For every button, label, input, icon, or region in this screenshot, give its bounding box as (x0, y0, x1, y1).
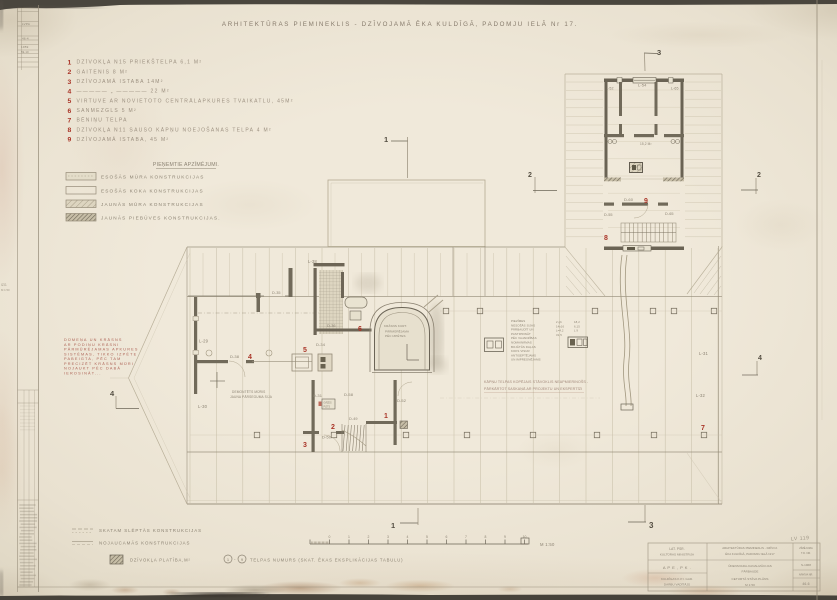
svg-text:KĀPŅU TELPAS KOPĒJAIS STĀVOKLI: KĀPŅU TELPAS KOPĒJAIS STĀVOKLIS NEAPMIER… (484, 379, 589, 384)
svg-text:————— „ ————— 22 M²: ————— „ ————— 22 M² (77, 89, 170, 95)
svg-text:46-6: 46-6 (802, 582, 809, 586)
svg-text:-: - (234, 557, 236, 562)
svg-text:DZĪVOJAMĀ ISTABA, 45 M²: DZĪVOJAMĀ ISTABA, 45 M² (77, 136, 170, 143)
svg-text:M 1:50: M 1:50 (1, 288, 10, 292)
svg-text:4: 4 (758, 355, 762, 362)
svg-text:PRECIZĒT KRĀSNS MŪRI: PRECIZĒT KRĀSNS MŪRI (64, 362, 134, 366)
svg-text:PĀRMŪRĒJAMAS APKURES: PĀRMŪRĒJAMAS APKURES (64, 348, 139, 352)
svg-text:31,5: 31,5 (556, 333, 562, 337)
svg-text:JAUNĀS PIEBŪVES KONSTRUKCIJAS.: JAUNĀS PIEBŪVES KONSTRUKCIJAS. (101, 215, 221, 221)
svg-text:1: 1 (227, 557, 230, 562)
svg-text:8: 8 (604, 235, 608, 242)
svg-text:D-60: D-60 (624, 197, 634, 202)
svg-text:UN IMPREGNĒJAMS: UN IMPREGNĒJAMS (511, 358, 541, 362)
svg-text:10: 10 (523, 535, 527, 539)
svg-text:GAITENIS 8 M²: GAITENIS 8 M² (77, 69, 129, 75)
svg-text:2: 2 (68, 69, 72, 76)
svg-text:L-54: L-54 (638, 83, 647, 88)
svg-text:D-34: D-34 (316, 342, 326, 347)
svg-text:DZĪVOJAMĀ ISTABA 14M²: DZĪVOJAMĀ ISTABA 14M² (77, 78, 164, 85)
svg-text:PĒC IZPĒTES: PĒC IZPĒTES (385, 334, 406, 338)
svg-text:D-52: D-52 (397, 398, 407, 403)
svg-text:TELPAS NUMURS (SKAT. ĒKAS EKSP: TELPAS NUMURS (SKAT. ĒKAS EKSPLIKĀCIJAS … (250, 558, 403, 563)
svg-text:GĀZES: GĀZES (324, 402, 333, 405)
svg-text:PĀRBAUDE: PĀRBAUDE (742, 570, 759, 574)
svg-text:0: 0 (329, 535, 331, 539)
svg-text:D-65: D-65 (665, 212, 674, 216)
svg-text:ĒKA KULDĪGĀ, PADOMJU IELĀ Nr17: ĒKA KULDĪGĀ, PADOMJU IELĀ Nr17 (725, 552, 775, 556)
svg-text:L 9: L 9 (574, 329, 578, 333)
svg-text:AR PODIŅU KRĀSNI: AR PODIŅU KRĀSNI (64, 343, 120, 347)
svg-text:5: 5 (303, 347, 307, 354)
svg-text:ŪDENSVADA-KANALIZĀCIJAS: ŪDENSVADA-KANALIZĀCIJAS (728, 564, 772, 568)
svg-text:PLĪTS: PLĪTS (324, 406, 331, 409)
svg-text:D-36: D-36 (327, 324, 336, 328)
svg-text:D-38: D-38 (230, 354, 240, 359)
svg-text:DŪMEŅA UN KRĀSNS: DŪMEŅA UN KRĀSNS (64, 338, 123, 342)
svg-text:D-31: D-31 (313, 393, 323, 398)
svg-text:PĀRKĀRTOT SASKAŅĀ AR PROJEKTU: PĀRKĀRTOT SASKAŅĀ AR PROJEKTU UN EKSPERT… (484, 387, 582, 391)
svg-text:9: 9 (504, 535, 506, 539)
svg-text:4: 4 (248, 354, 252, 361)
svg-text:2: 2 (528, 172, 532, 179)
svg-text:3: 3 (387, 535, 389, 539)
svg-text:6: 6 (358, 326, 362, 333)
svg-text:L-29: L-29 (199, 339, 209, 344)
svg-text:BĒNIŅU TELPA: BĒNIŅU TELPA (77, 117, 128, 124)
svg-text:LV 119: LV 119 (791, 535, 810, 542)
svg-text:S-1968: S-1968 (801, 563, 811, 567)
svg-text:LAT. PSR.: LAT. PSR. (669, 547, 684, 551)
svg-text:ARHITEKTŪRAS PIEMINEKLIS - DZĪ: ARHITEKTŪRAS PIEMINEKLIS - DZĪVOJAMĀ ĒKA… (222, 21, 578, 28)
svg-text:2: 2 (757, 172, 761, 179)
svg-text:JAUNA PĀRSEGUMA SIJA: JAUNA PĀRSEGUMA SIJA (230, 395, 273, 399)
svg-text:DARBU VADĪTĀJS: DARBU VADĪTĀJS (664, 583, 690, 587)
svg-text:PĀRMŪRĒJAMA: PĀRMŪRĒJAMA (385, 330, 409, 334)
svg-text:ARHITEKTŪRAS PIEMINEKLIS - DZĪ: ARHITEKTŪRAS PIEMINEKLIS - DZĪVOJ. (722, 546, 778, 550)
svg-text:D-49: D-49 (349, 417, 358, 421)
svg-text:5: 5 (426, 535, 428, 539)
svg-text:ZĪMĒJUMA: ZĪMĒJUMA (799, 546, 813, 550)
svg-text:3: 3 (303, 442, 307, 449)
svg-text:L-32: L-32 (696, 393, 706, 398)
svg-text:ESOŠĀS MŪRA KONSTRUKCIJAS: ESOŠĀS MŪRA KONSTRUKCIJAS (101, 174, 205, 180)
svg-text:T.D. NR.: T.D. NR. (801, 551, 811, 555)
svg-text:4: 4 (407, 535, 409, 539)
svg-text:L-38: L-38 (308, 259, 317, 264)
svg-text:7: 7 (701, 425, 705, 432)
svg-text:KULDĪGAS K.P.I. GAD.: KULDĪGAS K.P.I. GAD. (661, 577, 693, 581)
svg-text:A P E , P K .: A P E , P K . (663, 565, 691, 570)
svg-text:1: 1 (384, 135, 388, 144)
svg-text:LVPA: LVPA (22, 22, 30, 26)
svg-text:6: 6 (446, 535, 448, 539)
svg-text:3: 3 (649, 521, 654, 530)
svg-text:ESOŠĀS KOKA KONSTRUKCIJAS: ESOŠĀS KOKA KONSTRUKCIJAS (101, 188, 204, 194)
svg-text:JAUNĀS MŪRA KONSTRUKCIJAS: JAUNĀS MŪRA KONSTRUKCIJAS (101, 201, 204, 207)
svg-text:5: 5 (68, 98, 72, 105)
svg-text:L-65: L-65 (671, 87, 679, 91)
svg-text:2: 2 (368, 535, 370, 539)
svg-text:D-55: D-55 (604, 213, 613, 217)
svg-text:PABEIGTA, PĒC TAM: PABEIGTA, PĒC TAM (64, 357, 121, 361)
svg-text:7: 7 (465, 535, 467, 539)
svg-text:ARHĪVA NR.: ARHĪVA NR. (799, 574, 813, 577)
svg-text:D-58: D-58 (344, 392, 354, 397)
svg-text:7: 7 (68, 117, 72, 124)
svg-text:NESOŠĀS SIJAS: NESOŠĀS SIJAS (511, 322, 535, 327)
svg-text:D-35: D-35 (272, 291, 281, 295)
svg-text:4: 4 (110, 389, 115, 398)
svg-text:SISTĒMAS, TIKKO IZPĒTE: SISTĒMAS, TIKKO IZPĒTE (64, 352, 137, 356)
svg-text:DZĪVOKĻA PLATĪBA,M²: DZĪVOKĻA PLATĪBA,M² (130, 558, 191, 563)
svg-text:46-4: 46-4 (22, 36, 29, 40)
svg-text:8: 8 (485, 535, 487, 539)
svg-text:6: 6 (68, 108, 72, 115)
svg-text:SKATAM SLĒPTĀS KONSTRUKCIJAS: SKATAM SLĒPTĀS KONSTRUKCIJAS (99, 528, 202, 533)
svg-text:IEROSINĀT...: IEROSINĀT... (64, 371, 102, 375)
svg-text:NOJAUCAMĀS KONSTRUKCIJAS: NOJAUCAMĀS KONSTRUKCIJAS (99, 541, 190, 546)
svg-text:KRĀSNS KURT.: KRĀSNS KURT. (384, 324, 407, 328)
svg-text:DZĪVOKĻA N11 SAUSO KĀPŅU NOEJO: DZĪVOKĻA N11 SAUSO KĀPŅU NOEJOŠANAS TELP… (77, 126, 272, 133)
svg-text:IZG.: IZG. (1, 283, 7, 287)
svg-text:1: 1 (68, 60, 72, 67)
svg-text:15,2 M²: 15,2 M² (640, 142, 652, 146)
svg-text:SANMEZGLS 5 M²: SANMEZGLS 5 M² (77, 108, 137, 114)
svg-text:DZĪVOKĻA N15 PRIEKŠTELPA 6,1: DZĪVOKĻA N15 PRIEKŠTELPA 6,1 M² (77, 59, 203, 66)
svg-text:1: 1 (384, 413, 388, 420)
svg-text:59-10: 59-10 (21, 50, 29, 54)
svg-text:L-31: L-31 (699, 351, 709, 356)
svg-text:M 1:50: M 1:50 (540, 542, 555, 547)
svg-text:9: 9 (644, 198, 648, 205)
svg-text:4: 4 (68, 88, 72, 95)
svg-text:1: 1 (391, 521, 395, 530)
svg-text:1: 1 (348, 535, 350, 539)
svg-text:2: 2 (331, 424, 335, 431)
svg-text:M 1:50: M 1:50 (745, 583, 755, 587)
svg-text:3: 3 (68, 79, 72, 86)
svg-text:L-30: L-30 (198, 404, 208, 409)
svg-text:DEMONTĒTS MŪRIS: DEMONTĒTS MŪRIS (232, 390, 265, 394)
svg-text:8: 8 (68, 127, 72, 134)
svg-text:9: 9 (241, 557, 244, 562)
svg-text:3: 3 (657, 48, 661, 57)
svg-text:PIEŅEMTIE APZĪMĒJUMI.: PIEŅEMTIE APZĪMĒJUMI. (153, 161, 219, 168)
svg-text:KULTŪRAS MINISTRIJA: KULTŪRAS MINISTRIJA (660, 553, 694, 557)
svg-text:CETURTĀ STĀVA PLĀNS: CETURTĀ STĀVA PLĀNS (731, 577, 768, 581)
svg-text:1959: 1959 (21, 45, 29, 49)
svg-text:9: 9 (68, 137, 72, 144)
svg-text:VIRTUVE AR NOVIETOTO CENTRĀLAP: VIRTUVE AR NOVIETOTO CENTRĀLAPKURES TVAI… (77, 97, 294, 104)
svg-text:NOJAUKT PĒC DABĀ: NOJAUKT PĒC DABĀ (64, 367, 121, 371)
